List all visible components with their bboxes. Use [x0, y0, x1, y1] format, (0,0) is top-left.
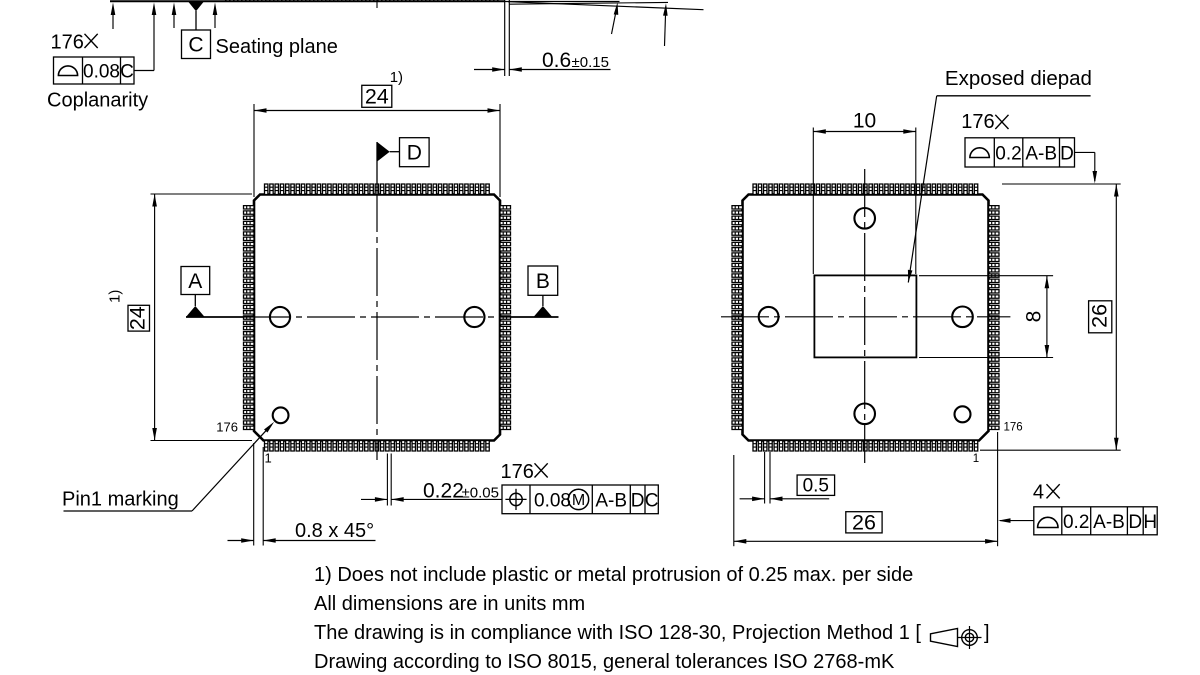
svg-text:26: 26 — [1087, 304, 1111, 328]
svg-text:]: ] — [984, 622, 990, 644]
svg-text:C: C — [120, 62, 134, 83]
svg-text:Pin1 marking: Pin1 marking — [62, 489, 179, 511]
svg-text:176: 176 — [1004, 422, 1023, 434]
svg-text:0.08: 0.08 — [83, 62, 120, 83]
svg-text:B: B — [536, 270, 550, 293]
svg-text:176: 176 — [51, 32, 84, 54]
svg-text:1): 1) — [390, 69, 403, 86]
svg-text:Drawing according to ISO 8015,: Drawing according to ISO 8015, general t… — [314, 651, 895, 673]
svg-text:±0.05: ±0.05 — [462, 485, 499, 502]
svg-text:8: 8 — [1023, 311, 1046, 323]
svg-text:0.8 x 45°: 0.8 x 45° — [295, 520, 374, 542]
svg-text:0.5: 0.5 — [803, 476, 829, 497]
svg-text:H: H — [1143, 512, 1157, 533]
svg-text:A-B: A-B — [1093, 512, 1125, 533]
svg-text:1: 1 — [265, 451, 272, 466]
svg-text:10: 10 — [853, 110, 876, 133]
svg-text:26: 26 — [852, 510, 876, 534]
svg-text:C: C — [188, 34, 203, 57]
svg-text:0.6: 0.6 — [542, 49, 571, 72]
svg-text:0.08: 0.08 — [534, 491, 571, 512]
svg-text:0.2: 0.2 — [995, 143, 1021, 164]
svg-text:A-B: A-B — [1025, 143, 1057, 164]
svg-text:1) Does not include plastic or: 1) Does not include plastic or metal pro… — [314, 564, 913, 586]
svg-text:D: D — [407, 142, 422, 165]
svg-text:A-B: A-B — [595, 491, 627, 512]
svg-text:D: D — [1128, 512, 1142, 533]
svg-text:24: 24 — [365, 85, 389, 109]
svg-text:C: C — [645, 491, 659, 512]
svg-text:All dimensions are in units mm: All dimensions are in units mm — [314, 593, 585, 615]
svg-text:176: 176 — [216, 420, 238, 435]
svg-text:Seating plane: Seating plane — [216, 36, 338, 58]
svg-text:0.2: 0.2 — [1063, 512, 1089, 533]
svg-text:D: D — [1060, 143, 1074, 164]
svg-text:±0.15: ±0.15 — [572, 54, 609, 71]
svg-text:4: 4 — [1033, 482, 1044, 504]
svg-text:D: D — [631, 491, 645, 512]
svg-text:A: A — [188, 270, 202, 293]
svg-text:M: M — [572, 492, 585, 509]
svg-text:176: 176 — [961, 111, 994, 133]
svg-text:24: 24 — [126, 306, 150, 330]
svg-text:176: 176 — [501, 461, 534, 483]
svg-text:Coplanarity: Coplanarity — [47, 90, 148, 112]
svg-text:0.22: 0.22 — [423, 480, 464, 503]
svg-text:1: 1 — [973, 453, 979, 465]
svg-text:1): 1) — [107, 290, 124, 303]
svg-text:The drawing is in compliance w: The drawing is in compliance with ISO 12… — [314, 622, 921, 644]
svg-text:Exposed diepad: Exposed diepad — [945, 67, 1092, 90]
